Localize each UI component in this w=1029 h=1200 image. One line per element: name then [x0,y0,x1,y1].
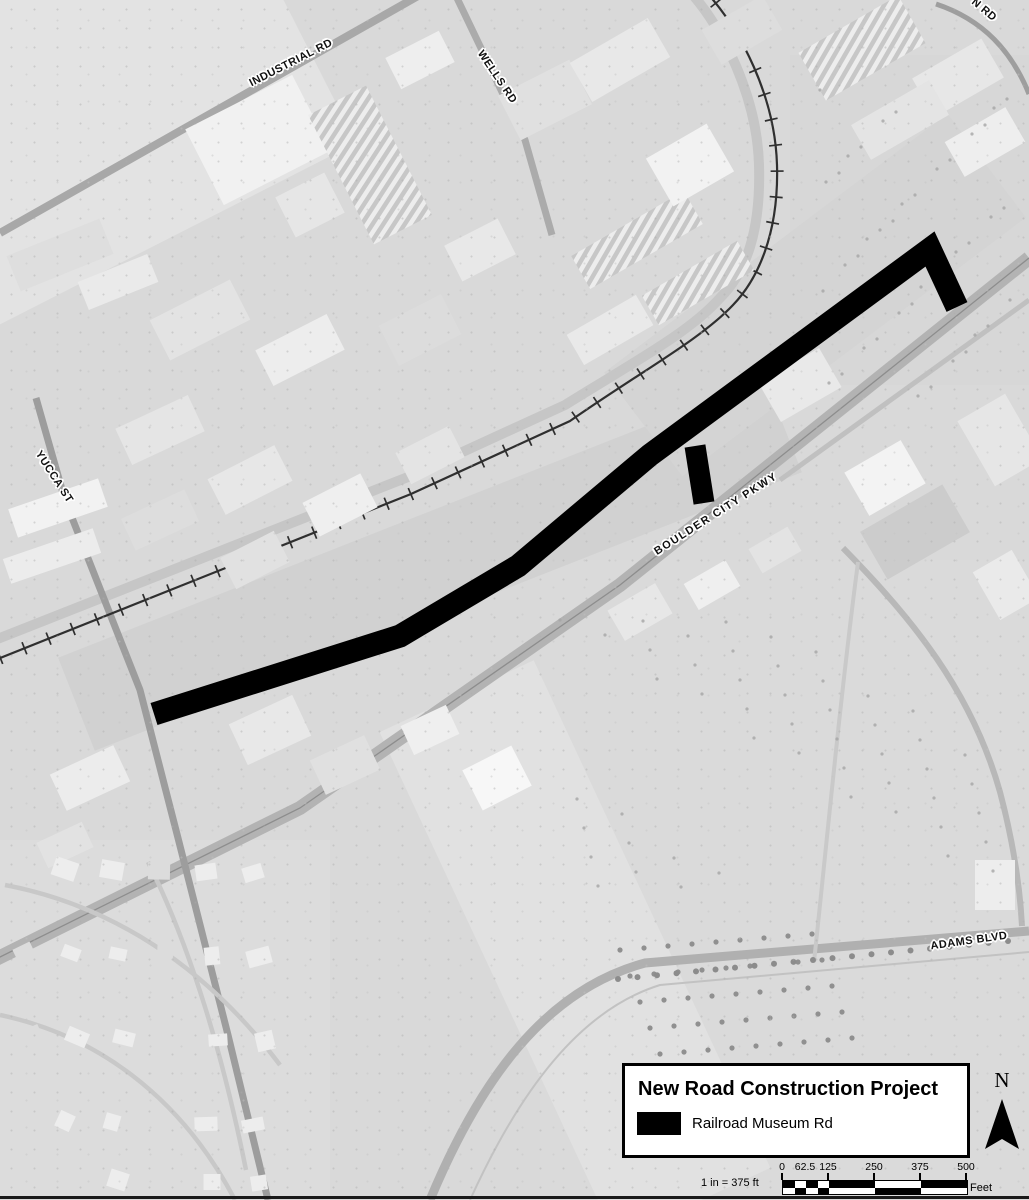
scale-tick-labels: 0 62.5 125 250 375 500 [782,1161,966,1173]
map-viewport: INDUSTRIAL RD WELLS RD N RD YUCCA ST BOU… [0,0,1029,1200]
railroad-museum-rd-overlay [154,249,957,714]
legend-item: Railroad Museum Rd [637,1112,967,1135]
scale-tick-label: 0 [779,1161,785,1173]
north-arrow-icon [985,1099,1019,1153]
scale-tick-label: 250 [865,1161,883,1173]
scale-tick-label: 500 [957,1161,975,1173]
scale-ratio-text: 1 in = 375 ft [701,1177,759,1189]
legend-box: New Road Construction Project Railroad M… [622,1063,970,1158]
railroad-museum-rd-spur [695,446,704,503]
project-overlay [0,0,1029,1200]
scale-tick-label: 125 [819,1161,837,1173]
scale-bar [782,1180,968,1195]
legend-title: New Road Construction Project [638,1078,967,1101]
north-arrow-label: N [985,1068,1019,1093]
scale-unit-label: Feet [970,1182,992,1194]
scale-tick-label: 62.5 [795,1161,815,1173]
legend-item-label: Railroad Museum Rd [692,1115,833,1132]
map-bottom-border [0,1196,1029,1199]
legend-swatch [637,1112,681,1135]
scale-tick-label: 375 [911,1161,929,1173]
scale-ticks [782,1173,966,1180]
